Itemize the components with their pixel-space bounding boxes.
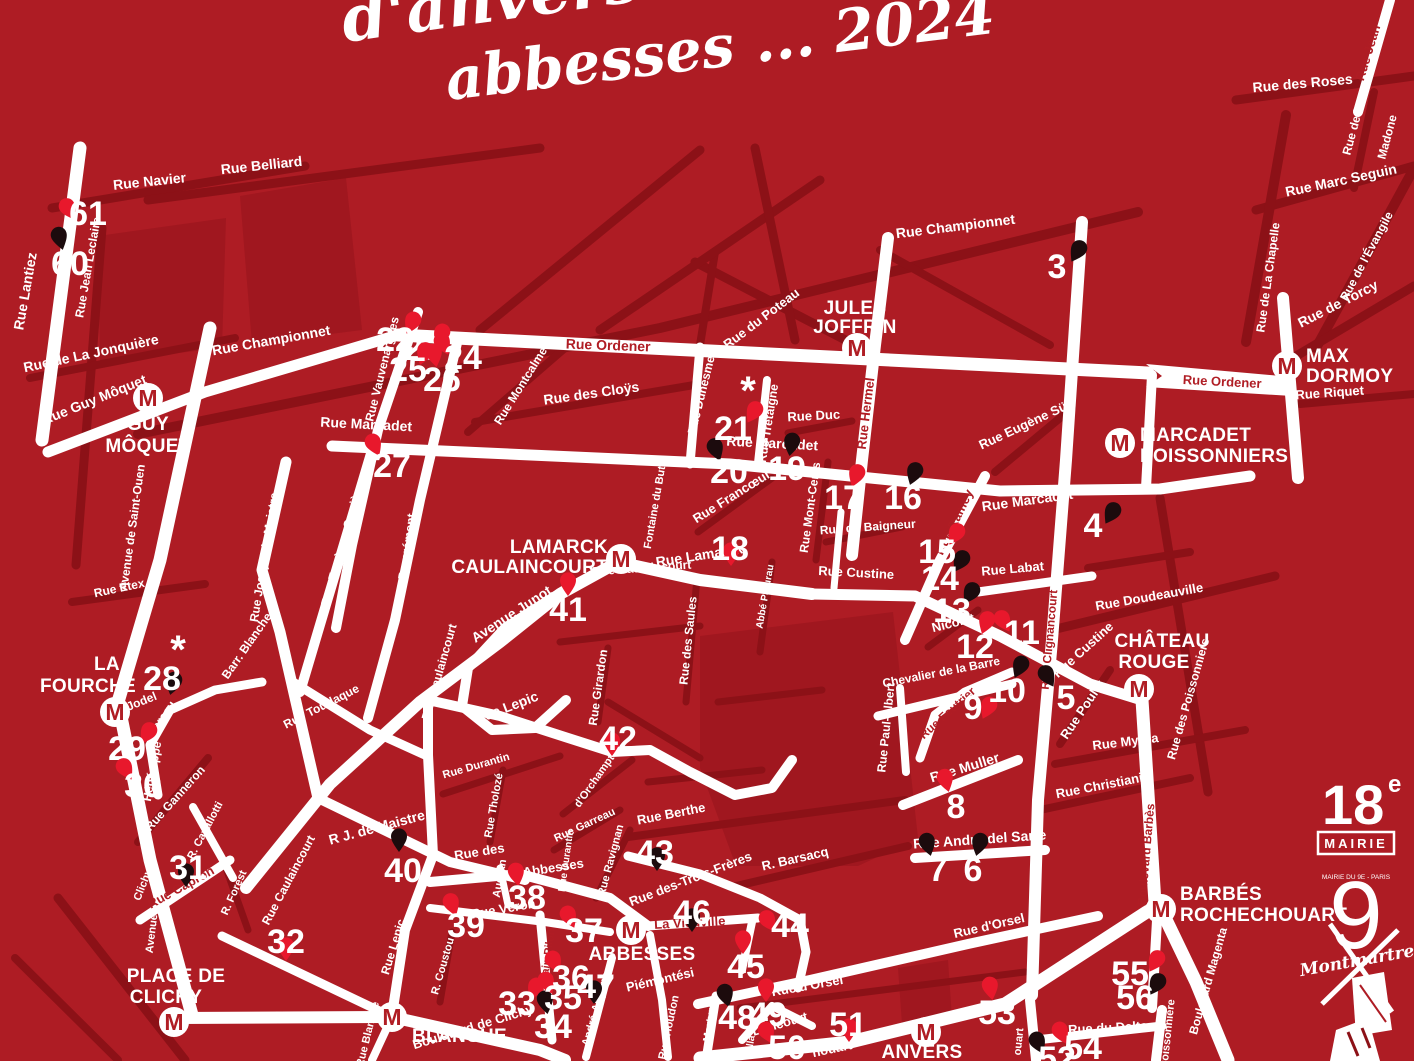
marker-number: 53 [978, 994, 1016, 1032]
marker-number: 3 [1048, 248, 1067, 286]
metro-m-letter: M [105, 699, 124, 725]
metro-station-name: ROCHECHOUART [1180, 905, 1347, 926]
map-marker-31[interactable]: 31 [169, 849, 207, 887]
metro-m-letter: M [1151, 896, 1170, 922]
marker-number: 17 [824, 479, 862, 517]
marker-number: 20 [710, 453, 748, 491]
marker-number: 10 [988, 672, 1026, 710]
marker-number: 12 [956, 628, 994, 666]
marker-number: 31 [169, 849, 207, 887]
marker-number: 27 [373, 447, 411, 485]
metro-m-letter: M [611, 546, 630, 572]
metro-station-name: ANVERS [882, 1042, 963, 1061]
marker-number: 30 [124, 767, 162, 805]
metro-station-name: CHÂTEAU [1115, 630, 1210, 652]
marker-number: 39 [447, 907, 485, 945]
logo-18e-sup: e [1388, 771, 1401, 798]
street-rue-de-rochechouart [1030, 1000, 1036, 1060]
map-marker-42[interactable]: 42 [599, 720, 637, 758]
metro-station-name: JOFFRIN [813, 317, 896, 338]
metro-m-letter: M [382, 1004, 401, 1030]
marker-number: 47 [577, 968, 615, 1006]
street-label: Rue Duc [787, 407, 840, 425]
marker-number: 44 [771, 907, 809, 945]
metro-m-letter: M [164, 1009, 183, 1035]
metro-station-name: CLICHY [130, 987, 203, 1008]
marker-number: 32 [267, 923, 305, 961]
marker-number: 41 [549, 591, 587, 629]
metro-station-name: BARBÉS [1180, 883, 1262, 905]
metro-m-letter: M [138, 385, 157, 411]
metro-station-name: POISSONNIERS [1140, 446, 1288, 467]
map-marker-46[interactable]: 46 [673, 894, 711, 932]
marker-number: 18 [711, 530, 749, 568]
marker-number: 33 [498, 985, 536, 1023]
metro-station-name: BLANCHE [412, 1026, 507, 1047]
metro-station-name: LAMARCK [510, 537, 608, 558]
marker-number: 45 [727, 948, 765, 986]
marker-number: 16 [884, 479, 922, 517]
logo-18e-number: 18 [1322, 773, 1384, 836]
asterisk-mark: * [740, 369, 756, 413]
metro-station-name: CAULAINCOURT [451, 557, 608, 578]
marker-number: 60 [51, 245, 89, 283]
metro-station-name: ROUGE [1118, 652, 1189, 673]
marker-number: 46 [673, 894, 711, 932]
marker-number: 6 [964, 851, 983, 889]
metro-station-name: MÔQUET [105, 435, 190, 457]
marker-number: 40 [384, 852, 422, 890]
montmartre-map-poster: Rue Ordener Rue NavierRue BelliardRue La… [0, 0, 1414, 1061]
metro-m-letter: M [1277, 353, 1296, 379]
marker-number: 61 [69, 195, 107, 233]
metro-station-name: ABBESSES [589, 944, 696, 965]
marker-number: 42 [599, 720, 637, 758]
marker-number: 56 [1116, 979, 1154, 1017]
metro-m-letter: M [1110, 430, 1129, 456]
marker-number: 11 [1004, 614, 1040, 652]
marker-number: 51 [829, 1006, 867, 1044]
marker-number: 19 [768, 450, 806, 488]
map-marker-43[interactable]: 43 [636, 834, 674, 872]
map-canvas: Rue Ordener Rue NavierRue BelliardRue La… [0, 0, 1414, 1061]
marker-number: 25 [389, 351, 427, 389]
metro-station-name: JULES [824, 298, 887, 319]
marker-number: 26 [423, 361, 461, 399]
map-marker-32[interactable]: 32 [267, 923, 305, 961]
marker-number: 38 [508, 879, 546, 917]
marker-number: 15 [918, 533, 956, 571]
marker-number: 4 [1084, 507, 1103, 545]
metro-station-name: LA [94, 654, 120, 675]
marker-number: 7 [929, 851, 948, 889]
logo-mairie-label: MAIRIE [1324, 836, 1388, 851]
city-block [240, 178, 362, 344]
metro-m-letter: M [621, 917, 640, 943]
marker-number: 28 [143, 660, 181, 698]
metro-m-letter: M [847, 335, 866, 361]
street-label: Rue Ordener [566, 336, 652, 355]
metro-station-name: GUY [127, 414, 169, 435]
marker-number: 5 [1057, 679, 1076, 717]
marker-number: 8 [947, 788, 966, 826]
marker-number: 50 [768, 1029, 806, 1061]
metro-station-name: MARCADET [1140, 425, 1251, 446]
metro-station-name: MAX [1306, 346, 1349, 367]
marker-number: 43 [636, 834, 674, 872]
marker-number: 54 [1064, 1029, 1102, 1061]
metro-m-letter: M [1129, 676, 1148, 702]
metro-station-name: DORMOY [1306, 366, 1393, 387]
marker-number: 9 [964, 689, 983, 727]
map-marker-18[interactable]: 18 [711, 530, 749, 568]
map-marker-47[interactable]: 47 [577, 968, 615, 1006]
metro-station-name: PLACE DE [127, 966, 225, 987]
metro-station-name: FOURCHE [40, 676, 136, 697]
map-marker-51[interactable]: 51 [829, 1006, 867, 1044]
marker-number: 21 [714, 410, 752, 448]
